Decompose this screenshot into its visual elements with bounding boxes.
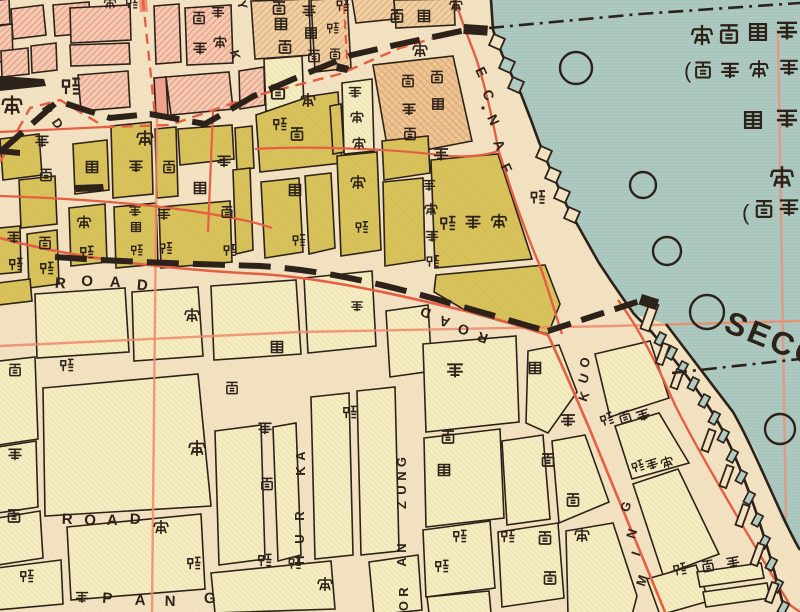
svg-text:A: A (394, 557, 409, 567)
svg-text:R: R (61, 511, 73, 528)
svg-text:R: R (292, 511, 307, 521)
svg-text:U: U (292, 534, 307, 543)
svg-text:K: K (293, 466, 308, 476)
svg-text:P: P (102, 590, 113, 608)
svg-text:G: G (204, 590, 216, 607)
svg-text:R: R (54, 275, 66, 293)
svg-text:O: O (84, 512, 97, 529)
svg-text:Z: Z (394, 501, 409, 509)
svg-text:(: ( (684, 58, 692, 83)
svg-text:O: O (81, 273, 94, 290)
svg-text:N: N (165, 593, 176, 610)
svg-text:R: R (396, 587, 411, 597)
svg-text:D: D (129, 511, 141, 528)
svg-text:A: A (293, 451, 308, 461)
svg-text:G: G (394, 457, 409, 467)
svg-text:A: A (109, 274, 121, 291)
svg-text:(: ( (742, 200, 750, 225)
svg-text:U: U (394, 485, 409, 494)
svg-text:N: N (394, 543, 409, 552)
svg-text:O: O (396, 601, 411, 611)
svg-text:H: H (292, 555, 307, 564)
svg-text:N: N (394, 471, 409, 480)
svg-text:A: A (106, 512, 118, 529)
svg-text:A: A (134, 592, 146, 609)
svg-text:D: D (136, 277, 148, 295)
